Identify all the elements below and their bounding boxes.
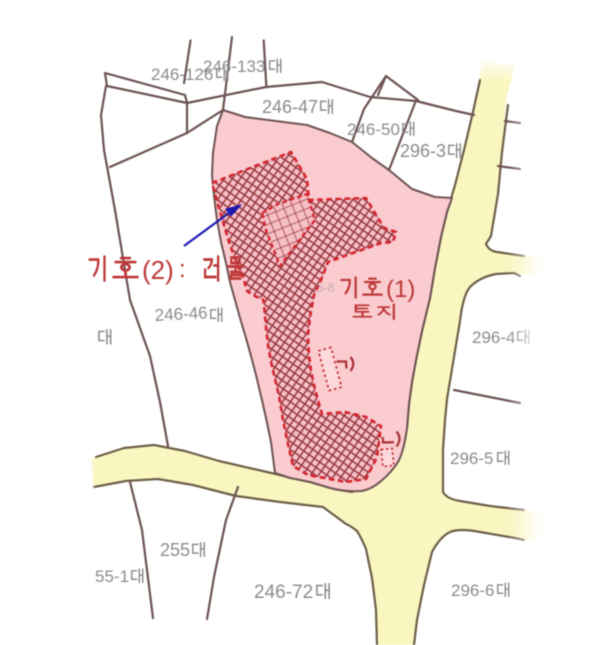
svg-text:5-8: 5-8 (316, 280, 335, 295)
svg-text:246-72: 246-72 (254, 582, 313, 603)
svg-text:296-6: 296-6 (451, 581, 494, 600)
svg-text:(2): (2) (142, 255, 174, 285)
svg-text:246-47: 246-47 (262, 97, 318, 117)
svg-text:296-5: 296-5 (450, 449, 493, 468)
svg-text:246-50: 246-50 (347, 120, 400, 139)
svg-text:246-46: 246-46 (154, 303, 208, 325)
svg-text:(1): (1) (386, 276, 415, 303)
svg-text::: : (179, 256, 186, 283)
svg-text:246-133: 246-133 (203, 57, 265, 76)
svg-text:296-3: 296-3 (400, 141, 446, 161)
svg-text:255: 255 (160, 540, 190, 560)
svg-text:55-1: 55-1 (95, 567, 129, 586)
